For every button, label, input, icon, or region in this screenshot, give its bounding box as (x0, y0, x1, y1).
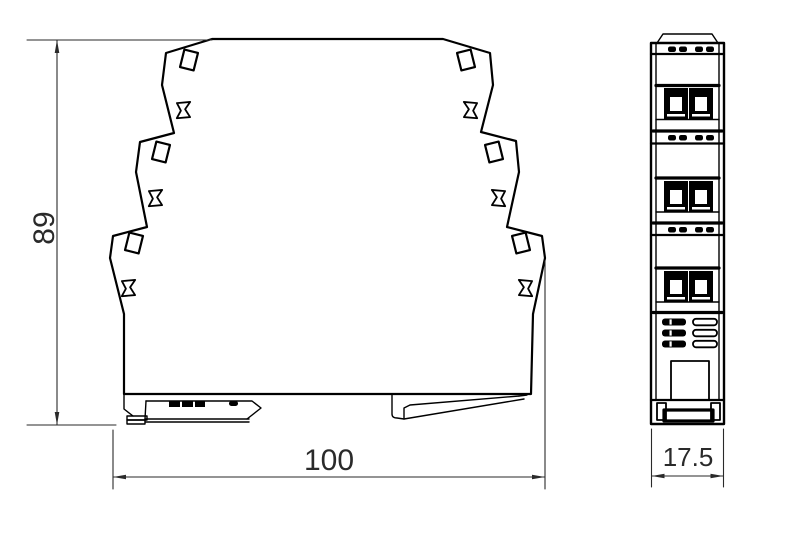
arrowhead-left (113, 475, 126, 480)
arrowhead-down (55, 412, 60, 425)
connector-opening (671, 361, 709, 400)
arrowhead-right (711, 474, 724, 479)
front-top-cap (657, 34, 718, 43)
arrowhead-up (55, 40, 60, 53)
dim-label-front-width: 17.5 (663, 442, 714, 472)
wire-entry-hole (147, 188, 164, 208)
dim-front-width: 17.5 (652, 429, 724, 487)
vent-row (662, 330, 717, 337)
dimension-drawing-canvas: 89 100 17.5 (0, 0, 800, 540)
front-din-foot (651, 400, 724, 421)
vent-row (662, 319, 717, 326)
screw-hole (512, 233, 530, 254)
din-latch (124, 394, 261, 424)
screw-terminal-pair (664, 88, 713, 119)
screw-hole (152, 142, 170, 163)
dim-label-height: 89 (28, 211, 61, 244)
screw-hole (485, 142, 503, 163)
wire-entry-hole (490, 188, 507, 208)
arrowhead-right (532, 475, 545, 480)
screw-terminal-pair (664, 271, 713, 302)
clamp-slot-row (668, 135, 714, 141)
din-hook (392, 395, 527, 419)
wire-entry-hole (462, 100, 479, 120)
screw-hole (125, 233, 143, 254)
dim-height: 89 (27, 40, 212, 425)
vent-row (662, 341, 717, 348)
dim-width: 100 (113, 261, 545, 489)
arrowhead-left (652, 474, 665, 479)
screw-hole (180, 50, 198, 71)
screw-hole (457, 50, 475, 71)
screw-terminal-pair (664, 181, 713, 212)
side-view (110, 39, 545, 424)
wire-entry-hole (517, 278, 534, 298)
front-view (651, 34, 724, 424)
clamp-slot-row (668, 47, 714, 53)
wire-entry-hole (120, 278, 137, 298)
housing-outline (110, 39, 545, 394)
wire-entry-hole (175, 100, 192, 120)
dim-label-width: 100 (304, 444, 354, 477)
clamp-slot-row (668, 227, 714, 233)
